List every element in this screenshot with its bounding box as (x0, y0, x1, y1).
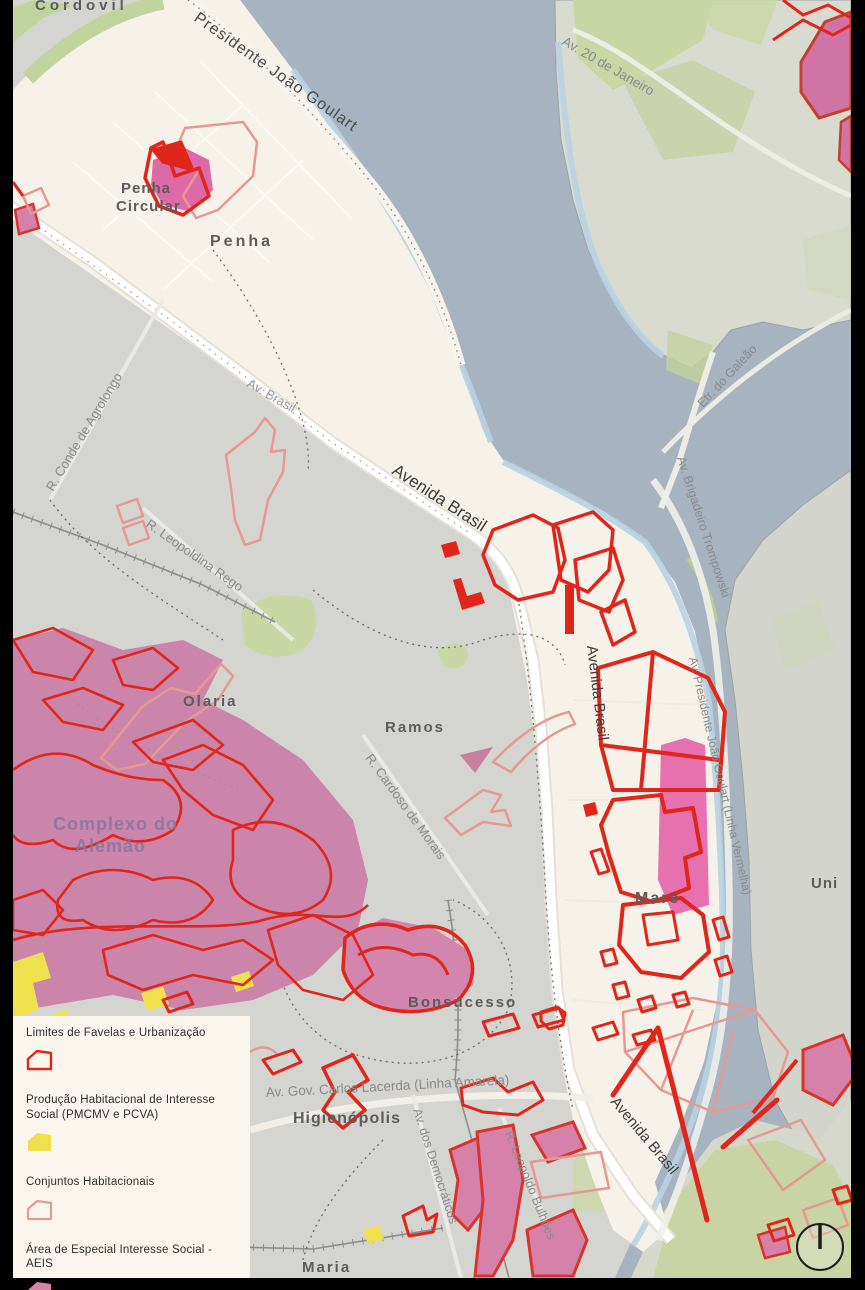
legend-swatch-aeis-pink-fill-icon (26, 1280, 54, 1290)
label-cardoso-de-morais: R. Cardoso de Morais (363, 751, 450, 863)
label-alemao-1: Complexo do (53, 814, 178, 834)
label-olaria: Olaria (183, 693, 238, 710)
legend-swatch-favelas-red-outline-icon (26, 1049, 54, 1072)
legend-label-producao-habitacional: Produção Habitacional de Interesse Socia… (26, 1093, 238, 1122)
label-ramos: Ramos (385, 719, 445, 736)
label-penha-circular-1: Penha (121, 180, 171, 197)
legend-swatch-pmcmv-yellow-fill-icon (26, 1131, 54, 1154)
label-leopoldina-rego: R. Leopoldina Rego (143, 516, 246, 594)
label-bonsucesso: Bonsucesso (408, 994, 517, 1011)
label-universidade: Uni (811, 875, 838, 892)
legend-panel: Limites de Favelas e Urbanização Produçã… (13, 1016, 250, 1278)
legend-label-aeis: Área de Especial Interesse Social - AEIS (26, 1243, 238, 1272)
legend-label-conjuntos: Conjuntos Habitacionais (26, 1175, 238, 1189)
label-cordovil: Cordovil (35, 0, 128, 14)
legend-swatch-conjuntos-salmon-outline-icon (26, 1199, 54, 1222)
label-maria-da-graca-1: Maria (302, 1259, 351, 1276)
label-mare: Maré (635, 890, 680, 907)
label-conde-de-agrolongo: R. Conde de Agrolongo (43, 370, 125, 494)
legend-label-favelas: Limites de Favelas e Urbanização (26, 1026, 238, 1040)
compass-north-indicator[interactable] (797, 1224, 843, 1270)
label-alemao-2: Alemão (75, 836, 146, 856)
label-higienopolis: Higienópolis (293, 1110, 401, 1127)
label-penha-circular-2: Circular (116, 198, 181, 215)
framed-map-page: Cordovil Presidente João Goulart Av. 20 … (0, 0, 865, 1290)
label-penha: Penha (210, 233, 273, 250)
